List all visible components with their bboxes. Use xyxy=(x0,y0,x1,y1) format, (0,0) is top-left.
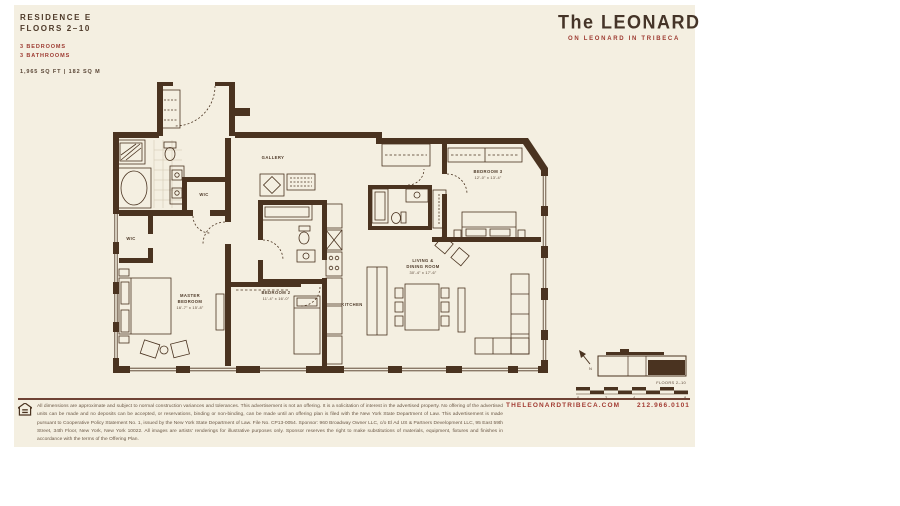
north-label: N xyxy=(589,366,592,371)
label-master-1: MASTER xyxy=(180,293,200,298)
residence-area: 1,965 SQ FT | 182 SQ M xyxy=(20,69,101,75)
bathtub3 xyxy=(372,189,388,223)
north-arrow-icon: N xyxy=(579,350,592,371)
bed3 xyxy=(462,212,516,238)
bathrooms-count: 3 BATHROOMS xyxy=(20,52,101,61)
armchair-1 xyxy=(140,340,160,358)
console xyxy=(458,288,465,332)
label-wic-lower: WIC xyxy=(126,236,135,241)
key-plan-drawing: N FLOORS 2–10 xyxy=(576,348,690,390)
legal-disclaimer: All dimensions are approximate and subje… xyxy=(37,403,503,444)
residence-info-block: RESIDENCE E FLOORS 2–10 3 BEDROOMS 3 BAT… xyxy=(20,12,101,75)
label-bedroom2: BEDROOM 2 xyxy=(262,290,291,295)
label-master-2: BEDROOM xyxy=(178,299,203,304)
dresser xyxy=(216,294,224,330)
label-living-dims: 30'-4" x 17'-6" xyxy=(410,270,437,275)
floor-plan-drawing: GALLERY WIC WIC W/D MASTER BEDROOM 16'-7… xyxy=(90,82,570,400)
phone-number: 212.966.0101 xyxy=(637,402,690,409)
lounge-chair-2 xyxy=(451,248,469,266)
dining-table xyxy=(405,284,439,330)
living-dining-furniture xyxy=(395,236,529,354)
sofa-bottom xyxy=(475,338,529,354)
range xyxy=(326,252,342,276)
bath3-door-arc xyxy=(408,169,424,185)
unit-location-highlight xyxy=(648,360,685,375)
website-text: THELEONARDTRIBECA.COM xyxy=(506,402,620,409)
brand-tagline: ON LEONARD IN TRIBECA xyxy=(558,36,690,42)
label-kitchen: KITCHEN xyxy=(341,302,362,307)
label-master-dims: 16'-7" x 15'-8" xyxy=(177,305,204,310)
building-footprint xyxy=(598,349,686,376)
bedrooms-count: 3 BEDROOMS xyxy=(20,43,101,52)
label-bedroom2-dims: 11'-4" x 16'-0" xyxy=(263,296,290,301)
bath3-fixtures xyxy=(372,169,446,228)
master-bath-door-arc xyxy=(193,216,210,233)
side-table xyxy=(160,346,168,354)
label-bedroom3-dims: 12'-0" x 13'-4" xyxy=(475,175,502,180)
residence-floors: FLOORS 2–10 xyxy=(20,23,101,34)
footer-rule xyxy=(18,398,690,400)
bedroom3-door-arc xyxy=(447,174,467,194)
outer-walls xyxy=(113,82,548,373)
entry-door xyxy=(175,86,215,126)
master-bath-fixtures xyxy=(117,140,184,208)
equal-housing-icon xyxy=(18,403,32,421)
bedroom3-furniture xyxy=(447,148,525,238)
label-living-1: LIVING & xyxy=(412,258,433,263)
label-gallery: GALLERY xyxy=(262,155,285,160)
brochure-page: RESIDENCE E FLOORS 2–10 3 BEDROOMS 3 BAT… xyxy=(0,0,900,506)
label-living-2: DINING ROOM xyxy=(406,264,439,269)
key-plan-label: FLOORS 2–10 xyxy=(656,380,686,385)
vanity3 xyxy=(406,189,428,202)
contact-line: THELEONARDTRIBECA.COM 212.966.0101 xyxy=(380,402,690,409)
master-door-arc xyxy=(203,222,225,244)
label-wic-upper: WIC xyxy=(199,192,208,197)
brand-block: The LEONARD ON LEONARD IN TRIBECA xyxy=(558,11,690,42)
residence-title: RESIDENCE E FLOORS 2–10 xyxy=(20,12,101,34)
armchair-2 xyxy=(171,340,190,357)
bed2 xyxy=(294,296,320,354)
sink2 xyxy=(297,250,315,262)
entry-closet xyxy=(162,90,180,128)
label-bedroom3: BEDROOM 3 xyxy=(474,169,503,174)
scale-segments xyxy=(576,387,688,394)
toilet3 xyxy=(392,213,401,224)
brand-logo: The LEONARD xyxy=(558,11,690,34)
residence-name: RESIDENCE E xyxy=(20,12,101,23)
windows xyxy=(113,176,548,373)
toilet2 xyxy=(299,226,310,231)
residence-stats: 3 BEDROOMS 3 BATHROOMS xyxy=(20,43,101,61)
bathtub2 xyxy=(262,204,312,220)
bath2-door-arc xyxy=(263,240,283,260)
floor-plan: GALLERY WIC WIC W/D MASTER BEDROOM 16'-7… xyxy=(90,82,570,405)
master-bed xyxy=(119,278,171,334)
bathtub xyxy=(117,168,151,208)
bath2-fixtures xyxy=(262,204,315,262)
